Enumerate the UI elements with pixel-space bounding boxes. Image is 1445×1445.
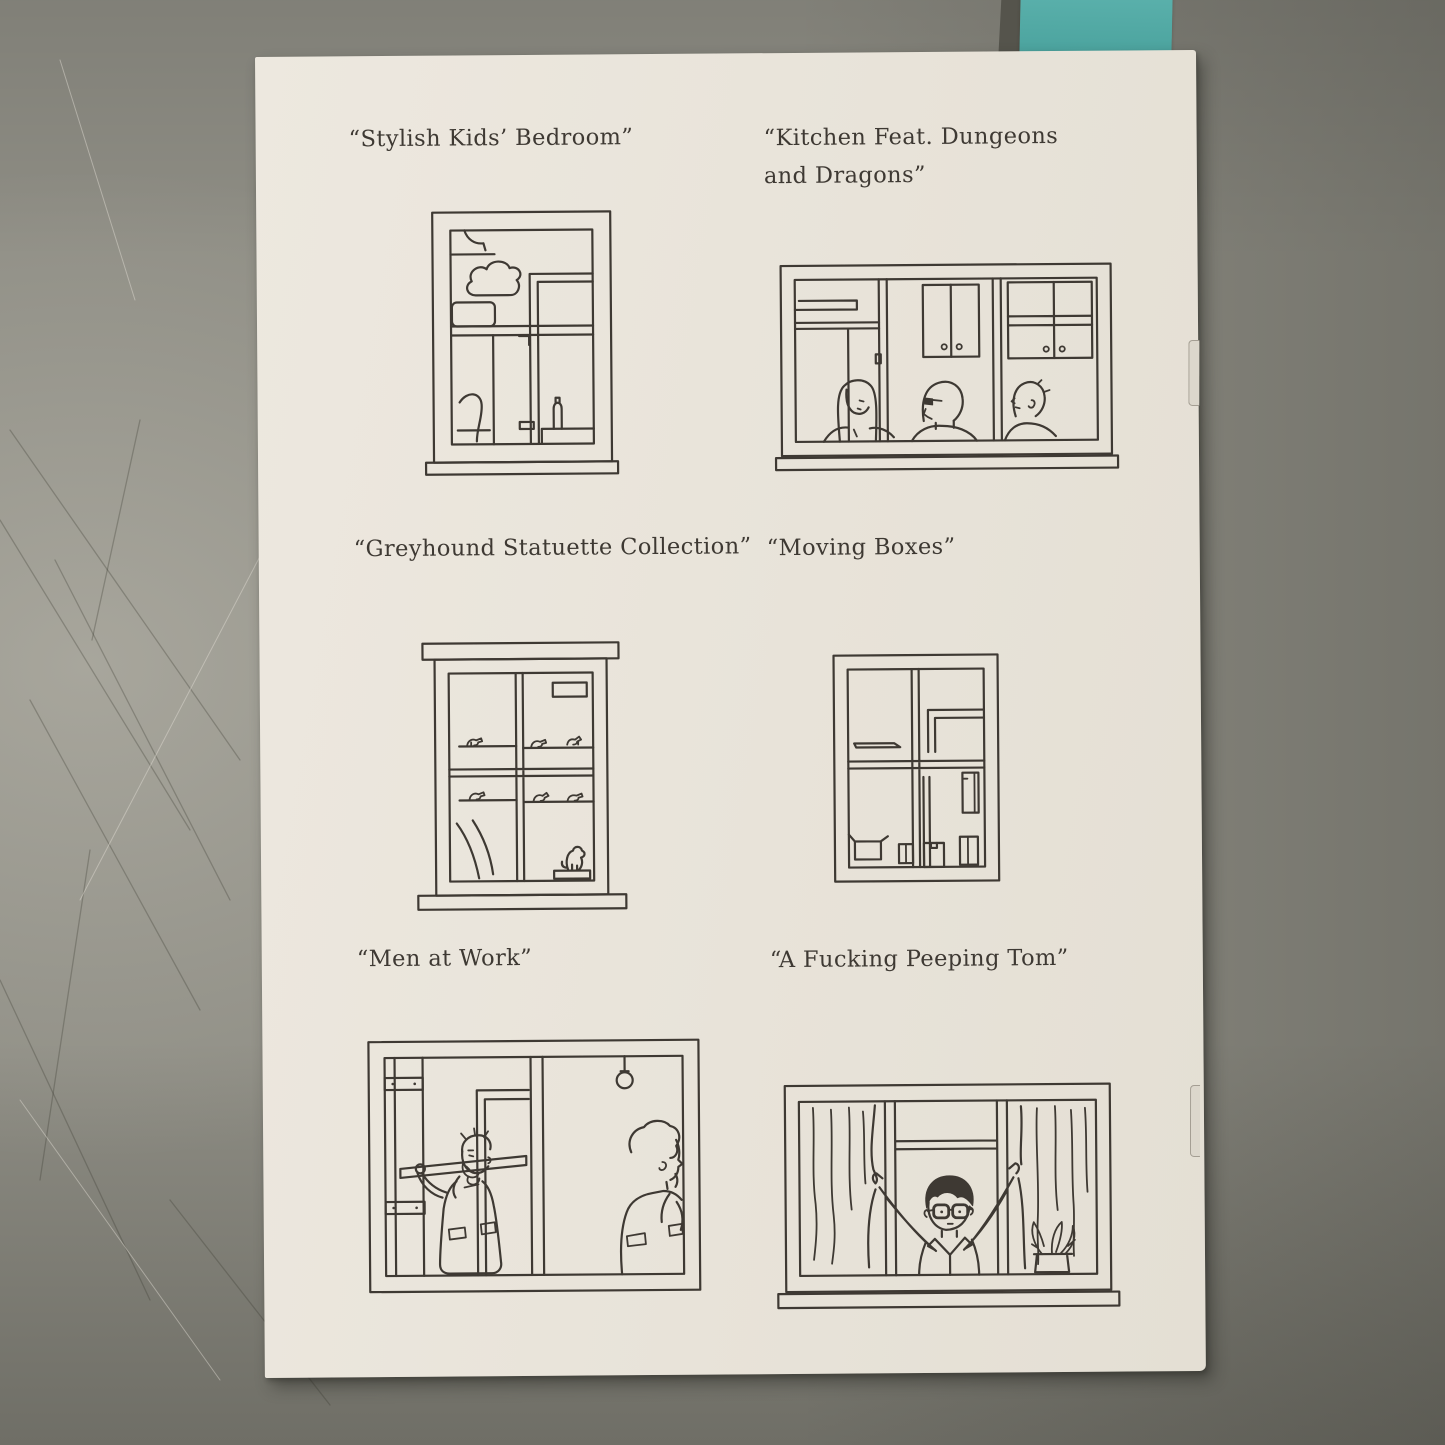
statuette-shelves [459, 682, 594, 802]
illustration-kids-bedroom [422, 207, 620, 480]
right-curtain [1018, 1106, 1088, 1269]
caption-kids-bedroom: “Stylish Kids’ Bedroom” [348, 118, 633, 158]
window-frame [777, 1084, 1120, 1309]
bare-bulb [617, 1056, 633, 1088]
zine-page: “Stylish Kids’ Bedroom” “Kitchen Feat. D… [255, 50, 1206, 1378]
caption-peeping-tom: “A Fucking Peeping Tom” [770, 939, 1069, 979]
illustration-greyhound-statuettes [414, 637, 628, 917]
window-frame [424, 211, 618, 474]
figure-man-glasses [911, 382, 976, 442]
left-curtain [813, 1105, 878, 1267]
window-frame [416, 642, 626, 910]
figure-worker-walking [620, 1121, 683, 1275]
caption-kitchen-dnd: “Kitchen Feat. Dungeons and Dragons” [763, 117, 1082, 195]
curtain [457, 820, 493, 878]
illustration-men-at-work [362, 1034, 706, 1299]
caption-greyhound: “Greyhound Statuette Collection” [354, 527, 752, 568]
caption-moving-boxes: “Moving Boxes” [767, 528, 956, 567]
window-frame [834, 654, 1000, 881]
staple [1188, 340, 1199, 406]
illustration-moving-boxes [825, 646, 1007, 892]
staple [1190, 1085, 1200, 1157]
kitchen-cabinets [795, 282, 1093, 442]
caption-men-at-work: “Men at Work” [357, 939, 533, 978]
figure-man-bald [1004, 380, 1055, 440]
illustration-peeping-tom [775, 1076, 1122, 1334]
cloud-decal [467, 261, 521, 295]
bedroom-interior [450, 229, 594, 444]
illustration-kitchen-dnd [775, 258, 1119, 479]
figure-woman [823, 380, 893, 442]
photo-of-zine-on-table: “Stylish Kids’ Bedroom” “Kitchen Feat. D… [0, 0, 1445, 1445]
sitting-dog-statuette [554, 847, 590, 879]
